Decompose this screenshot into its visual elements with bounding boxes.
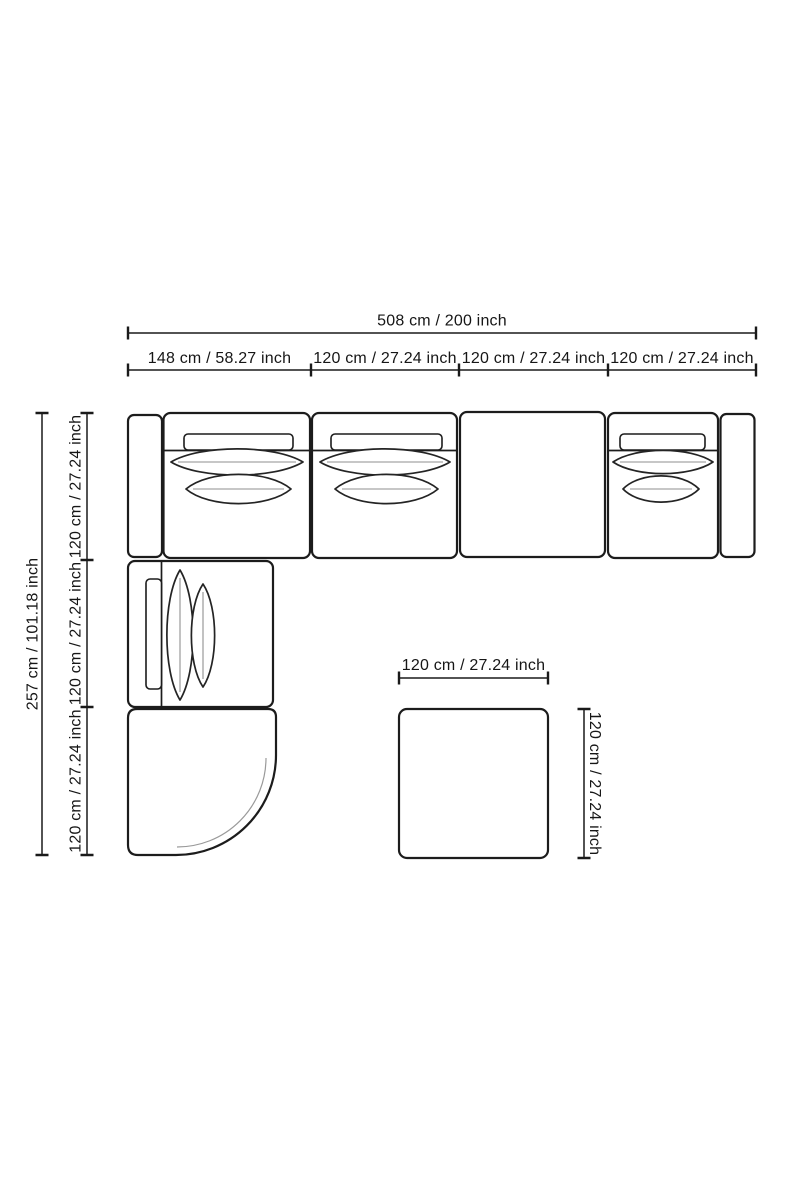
sofa-dimension-diagram: 508 cm / 200 inch 148 cm / 58.27 inch 12… bbox=[0, 0, 800, 1200]
dim-top-segment-3-label: 120 cm / 27.24 inch bbox=[462, 350, 605, 367]
sofa-left-column bbox=[128, 561, 276, 855]
dim-left-segment-1-label: 120 cm / 27.24 inch bbox=[68, 415, 85, 558]
seat-module-3-headrest-pillow bbox=[620, 434, 705, 450]
sofa-left-armrest bbox=[128, 415, 162, 557]
sofa-seat-module-3 bbox=[608, 413, 718, 558]
sofa-seat-module-2 bbox=[312, 413, 457, 558]
sofa-chaise-module bbox=[128, 561, 273, 707]
sofa-curved-end-module bbox=[128, 709, 276, 855]
seat-module-1-headrest-pillow bbox=[184, 434, 293, 450]
dim-top-segment-1-label: 148 cm / 58.27 inch bbox=[148, 350, 291, 367]
dim-left-segments: 120 cm / 27.24 inch 120 cm / 27.24 inch … bbox=[68, 413, 94, 855]
curved-end-body bbox=[128, 709, 276, 855]
ottoman: 120 cm / 27.24 inch 120 cm / 27.24 inch bbox=[399, 657, 603, 858]
ottoman-body bbox=[399, 709, 548, 858]
dim-total-depth-label: 257 cm / 101.18 inch bbox=[25, 558, 42, 711]
dim-top-segment-2-label: 120 cm / 27.24 inch bbox=[313, 350, 456, 367]
dim-top-segment-4-label: 120 cm / 27.24 inch bbox=[610, 350, 753, 367]
sofa-right-armrest bbox=[721, 414, 755, 557]
dim-ottoman-depth: 120 cm / 27.24 inch bbox=[578, 709, 604, 858]
seat-module-2-headrest-pillow bbox=[331, 434, 442, 450]
dim-left-segment-3-label: 120 cm / 27.24 inch bbox=[68, 709, 85, 852]
dim-left-segment-2-label: 120 cm / 27.24 inch bbox=[68, 562, 85, 705]
dim-total-width-label: 508 cm / 200 inch bbox=[377, 313, 507, 330]
sofa-corner-module-plain bbox=[460, 412, 605, 557]
sofa-top-row bbox=[128, 412, 755, 558]
dim-ottoman-depth-label: 120 cm / 27.24 inch bbox=[586, 712, 603, 855]
dim-total-width: 508 cm / 200 inch bbox=[128, 313, 756, 340]
chaise-headrest-pillow bbox=[146, 579, 162, 689]
dim-ottoman-width-label: 120 cm / 27.24 inch bbox=[402, 657, 545, 674]
dim-ottoman-width: 120 cm / 27.24 inch bbox=[399, 657, 548, 685]
sofa-plan-svg: 508 cm / 200 inch 148 cm / 58.27 inch 12… bbox=[0, 0, 800, 1200]
dim-total-depth: 257 cm / 101.18 inch bbox=[25, 413, 49, 855]
dim-top-segments: 148 cm / 58.27 inch 120 cm / 27.24 inch … bbox=[128, 350, 756, 377]
sofa-seat-module-1 bbox=[164, 413, 311, 558]
